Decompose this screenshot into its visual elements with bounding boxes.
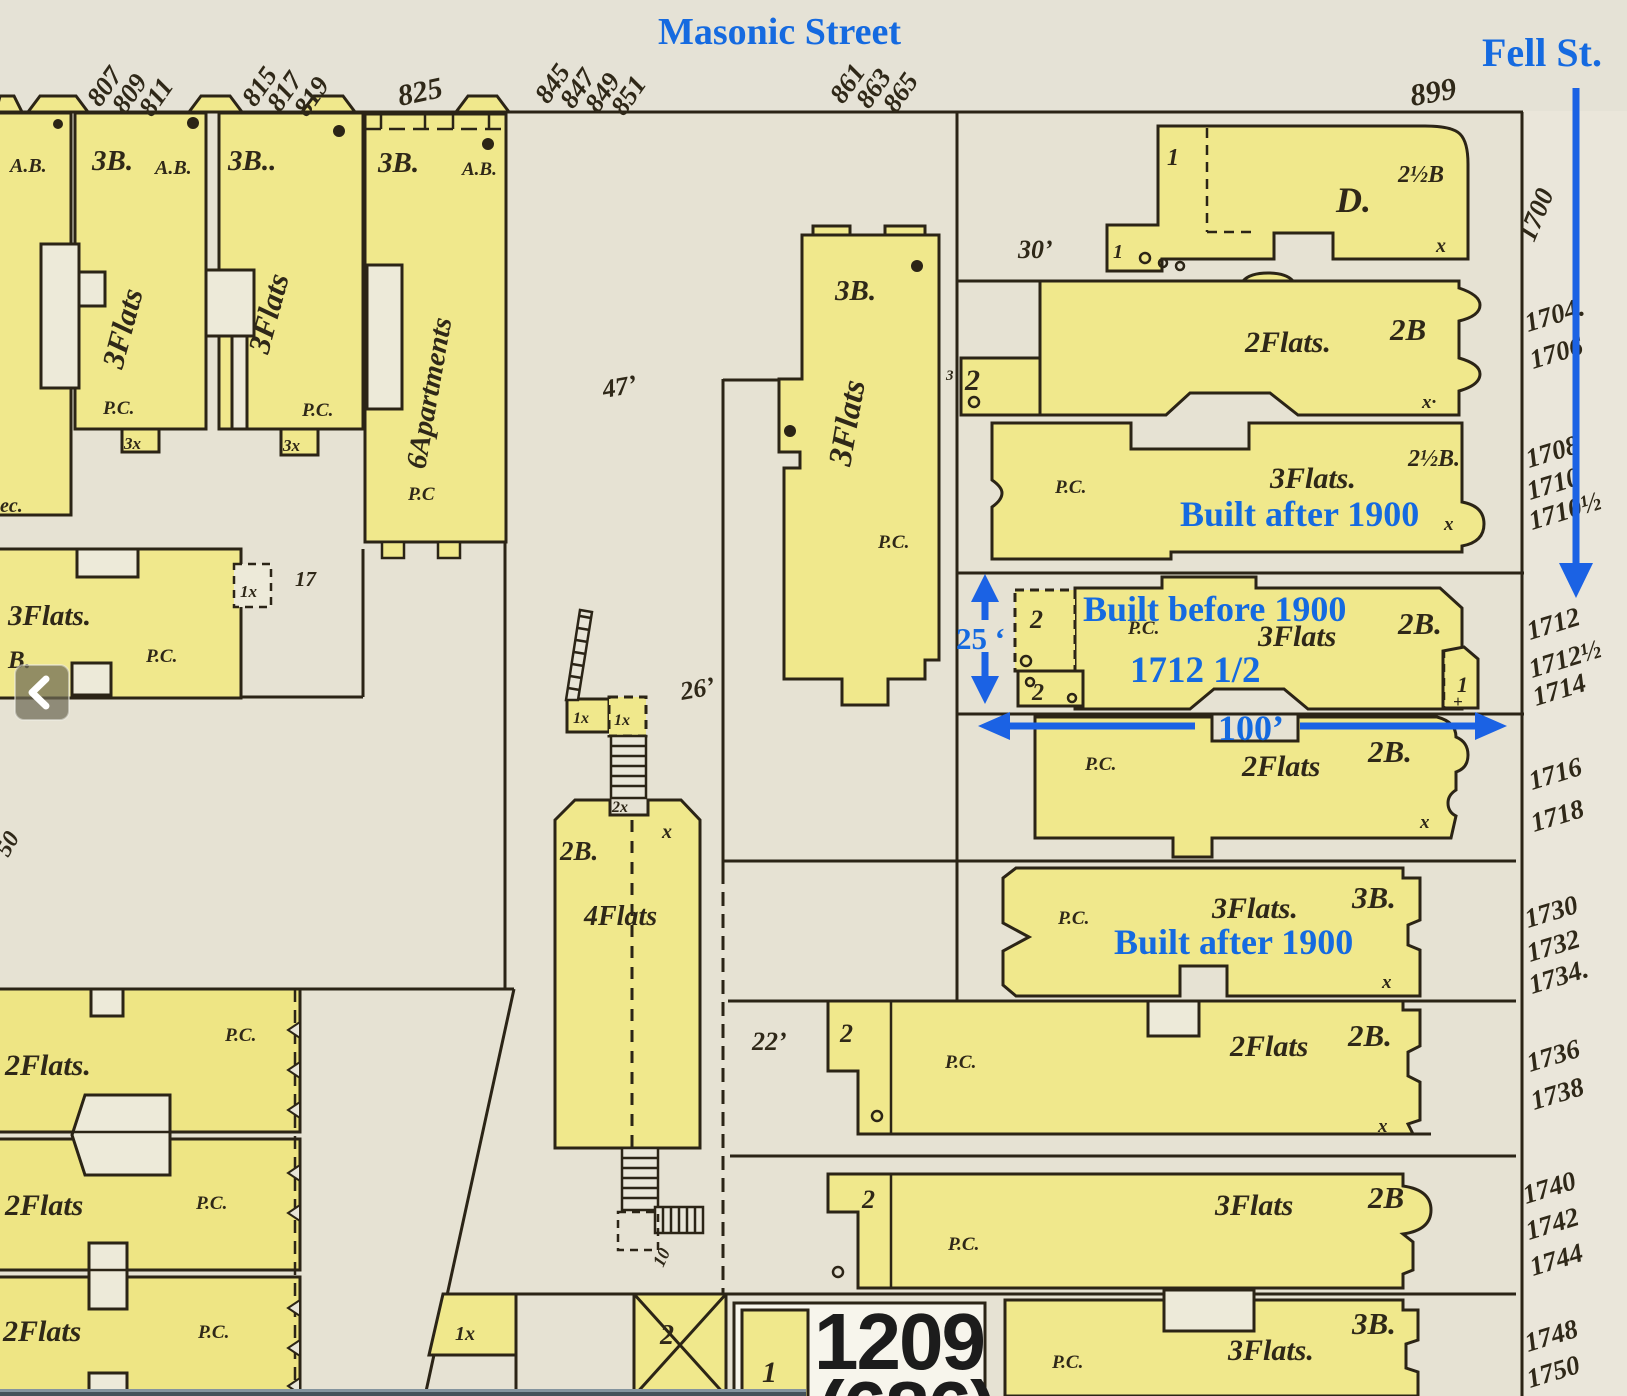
svg-text:Built after 1900: Built after 1900 — [1114, 922, 1353, 962]
svg-text:3B..: 3B.. — [227, 145, 276, 177]
svg-text:47’: 47’ — [599, 369, 639, 404]
svg-text:3Flats: 3Flats — [1214, 1189, 1293, 1222]
svg-text:P.C.: P.C. — [102, 398, 134, 419]
svg-text:Built after 1900: Built after 1900 — [1180, 494, 1419, 534]
svg-text:P.C.: P.C. — [1057, 908, 1089, 929]
svg-text:3x: 3x — [282, 436, 301, 455]
svg-text:P.C.: P.C. — [195, 1193, 227, 1214]
svg-text:1712 1/2: 1712 1/2 — [1130, 650, 1261, 691]
svg-text:x: x — [1443, 514, 1454, 535]
svg-text:Built before 1900: Built before 1900 — [1083, 589, 1346, 629]
svg-text:1x: 1x — [573, 710, 589, 727]
svg-text:1x: 1x — [455, 1323, 475, 1345]
svg-text:30’: 30’ — [1017, 235, 1053, 264]
svg-text:3x: 3x — [123, 434, 142, 453]
svg-text:x: x — [1381, 972, 1392, 993]
svg-text:ec.: ec. — [0, 495, 23, 517]
svg-text:Fell St.: Fell St. — [1482, 30, 1602, 75]
svg-text:A.B.: A.B. — [8, 155, 47, 177]
svg-text:2: 2 — [839, 1019, 853, 1048]
svg-text:2B.: 2B. — [1367, 734, 1412, 769]
svg-text:x·: x· — [1421, 392, 1437, 413]
svg-text:x: x — [1377, 1116, 1388, 1137]
svg-text:P.C.: P.C. — [1054, 477, 1086, 498]
svg-text:P.C.: P.C. — [224, 1025, 256, 1046]
svg-text:2Flats: 2Flats — [1241, 750, 1320, 783]
svg-text:17: 17 — [295, 567, 318, 591]
svg-text:2Flats: 2Flats — [2, 1315, 81, 1348]
svg-text:P.C.: P.C. — [301, 400, 333, 421]
svg-text:2Flats: 2Flats — [1229, 1030, 1308, 1063]
svg-text:(686): (686) — [818, 1365, 995, 1396]
svg-text:4Flats: 4Flats — [583, 901, 657, 932]
svg-text:1x: 1x — [614, 712, 630, 729]
svg-text:3Flats.: 3Flats. — [7, 600, 91, 632]
svg-text:2B.: 2B. — [559, 836, 598, 866]
svg-text:1: 1 — [762, 1356, 777, 1389]
svg-text:1: 1 — [1113, 241, 1123, 263]
svg-text:A.B.: A.B. — [461, 159, 497, 180]
svg-text:1x: 1x — [240, 582, 258, 601]
svg-text:22’: 22’ — [751, 1027, 787, 1056]
svg-text:P.C.: P.C. — [947, 1234, 979, 1255]
svg-text:2Flats.: 2Flats. — [4, 1049, 91, 1082]
svg-text:1: 1 — [1167, 145, 1179, 171]
svg-text:2B.: 2B. — [1397, 606, 1442, 641]
svg-text:2: 2 — [964, 364, 980, 397]
svg-text:P.C.: P.C. — [877, 532, 909, 553]
svg-text:+: + — [1453, 692, 1463, 711]
svg-text:2: 2 — [861, 1185, 875, 1214]
svg-text:P.C.: P.C. — [145, 646, 177, 667]
svg-text:3B.: 3B. — [834, 275, 876, 307]
svg-text:2Flats.: 2Flats. — [1244, 326, 1331, 359]
svg-text:D.: D. — [1335, 180, 1371, 220]
svg-text:3Flats.: 3Flats. — [1269, 462, 1356, 495]
svg-text:P.C.: P.C. — [197, 1322, 229, 1343]
svg-text:2B.: 2B. — [1347, 1018, 1392, 1053]
svg-text:3Flats.: 3Flats. — [1211, 892, 1298, 925]
svg-text:2: 2 — [659, 1320, 674, 1351]
svg-text:P.C: P.C — [407, 484, 435, 505]
svg-text:P.C.: P.C. — [1084, 754, 1116, 775]
svg-text:26’: 26’ — [677, 671, 717, 706]
svg-text:A.B.: A.B. — [153, 157, 192, 179]
svg-text:2½B.: 2½B. — [1407, 446, 1460, 472]
svg-text:2½B: 2½B — [1397, 162, 1444, 188]
svg-text:100’: 100’ — [1218, 708, 1284, 748]
svg-text:2B: 2B — [1389, 312, 1426, 347]
svg-text:3B.: 3B. — [1351, 880, 1396, 915]
svg-text:Masonic Street: Masonic Street — [658, 11, 901, 53]
svg-text:25 ‘: 25 ‘ — [956, 621, 1005, 656]
svg-text:3Flats.: 3Flats. — [1227, 1334, 1314, 1367]
svg-text:3B.: 3B. — [91, 145, 133, 177]
svg-text:2B: 2B — [1367, 1180, 1404, 1215]
svg-text:P.C.: P.C. — [944, 1052, 976, 1073]
svg-text:x: x — [1419, 812, 1430, 833]
svg-text:2Flats: 2Flats — [4, 1189, 83, 1222]
svg-text:2: 2 — [1029, 605, 1043, 634]
svg-text:P.C.: P.C. — [1051, 1352, 1083, 1373]
svg-text:2x: 2x — [611, 799, 628, 816]
svg-text:3B.: 3B. — [1351, 1306, 1396, 1341]
svg-text:3: 3 — [945, 368, 954, 384]
svg-text:x: x — [661, 821, 672, 843]
svg-text:x: x — [1435, 235, 1446, 257]
svg-text:3B.: 3B. — [377, 147, 419, 179]
